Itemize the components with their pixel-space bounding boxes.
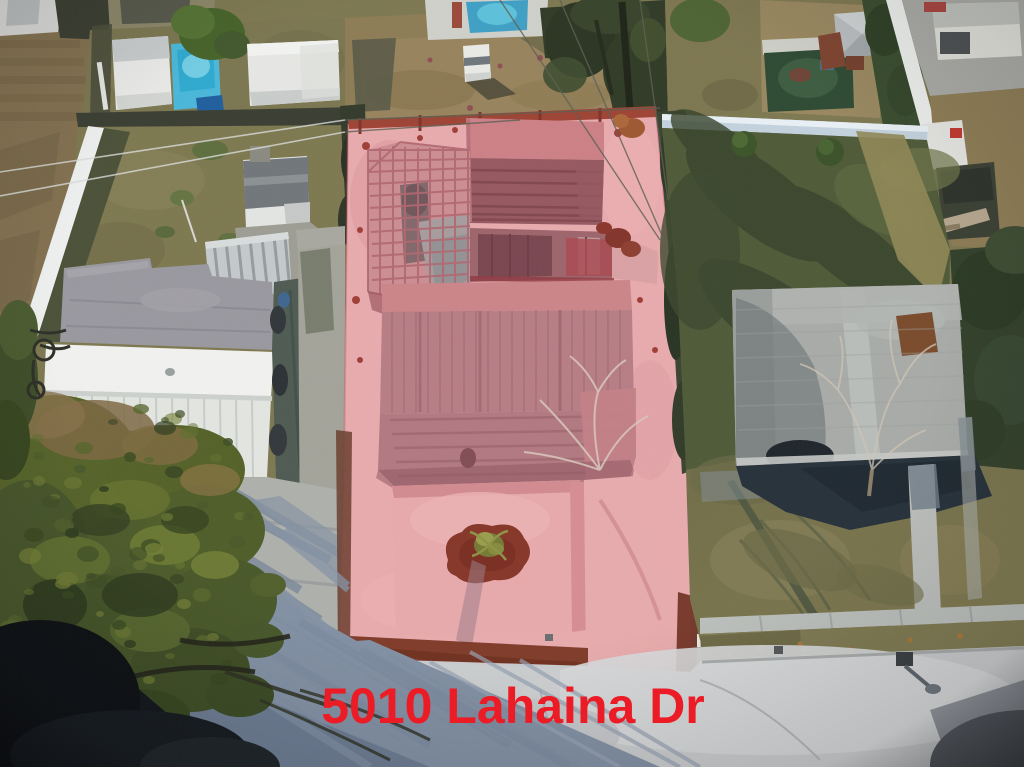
svg-text:5010 Lahaina Dr: 5010 Lahaina Dr: [321, 678, 705, 734]
